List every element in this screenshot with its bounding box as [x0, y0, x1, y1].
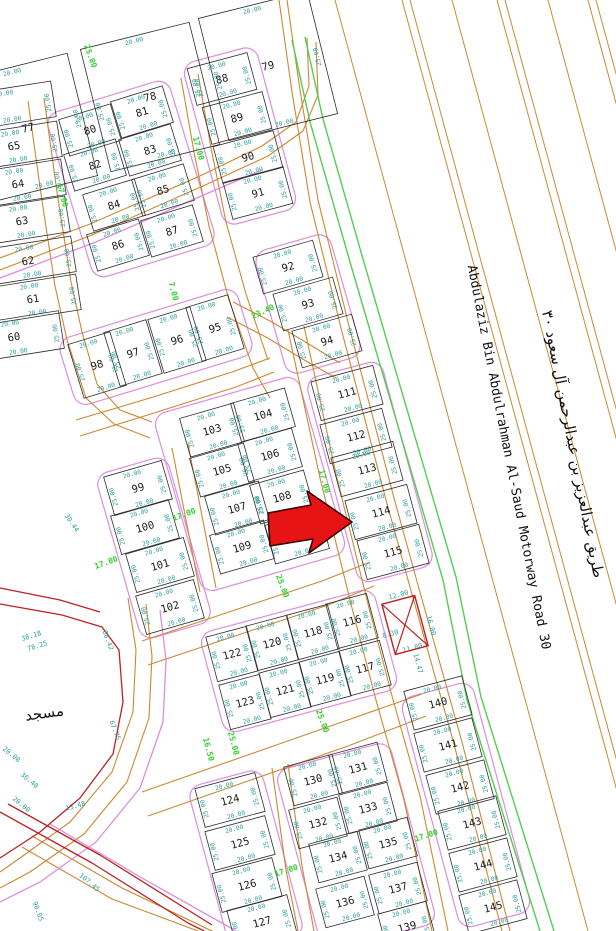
lot-dimension-label: 25.00 [288, 777, 300, 797]
lot-dimension-label: 20.00 [394, 898, 414, 910]
lot-dimension-label: 20.00 [206, 451, 226, 463]
road-width-label: 17.00 [93, 554, 119, 571]
lot-dimension-label: 20.00 [247, 396, 267, 408]
lot-dimension-label: 20.00 [349, 633, 369, 645]
lot-dimension-label: 20.00 [132, 370, 152, 382]
lot-dimension-label: 20.00 [226, 810, 246, 822]
parcel: 10425.0025.0020.0020.00 [231, 388, 296, 442]
boundary-dimension-label: 107.45 [77, 872, 101, 894]
boundary-dimension-label: 90.05 [31, 900, 46, 922]
lot-number: 86 [110, 238, 126, 253]
lot-dimension-label: 25.00 [68, 163, 80, 183]
lot-number: 134 [327, 849, 348, 866]
parcel: 9725.0025.0020.0020.00 [104, 320, 162, 386]
lot-number: 87 [164, 224, 180, 239]
lot-dimension-label: 20.00 [79, 147, 99, 159]
lot-dimension-label: 20.00 [115, 253, 135, 265]
lot-dimension-label: 25.00 [184, 428, 196, 448]
boundary-dimension-label: 88.42 [101, 629, 116, 651]
parcel: 12325.0025.0020.0020.00 [219, 674, 271, 729]
lot-dimension-label: 25.00 [307, 253, 319, 273]
lot-dimension-label: 20.00 [284, 275, 304, 287]
lot-number: 83 [142, 143, 158, 158]
lot-number: 105 [211, 462, 233, 479]
lot-number: 109 [231, 539, 253, 556]
lot-dimension-label: 20.00 [354, 778, 374, 790]
lot-dimension-label: 25.00 [453, 863, 465, 883]
lot-number: 79 [261, 59, 276, 74]
parcel: 14425.0025.0020.0020.00 [449, 838, 517, 892]
lot-dimension-label: 20.00 [362, 680, 382, 692]
lot-dimension-label: 25.00 [140, 606, 152, 626]
lot-number: 115 [382, 544, 403, 561]
lot-dimension-label: 20.00 [157, 574, 177, 586]
lot-dimension-label: 25.00 [178, 176, 190, 196]
lot-number: 118 [302, 624, 323, 641]
lot-dimension-label: 25.00 [343, 805, 355, 825]
lot-number: 94 [319, 334, 334, 349]
plat-map-viewport: 7725.0025.0020.0020.007825.0025.0020.002… [0, 0, 616, 931]
lot-dimension-label: 20.00 [126, 94, 146, 106]
lot-dimension-label: 25.00 [324, 435, 336, 455]
parcel: 12025.0025.0020.0020.00 [246, 615, 298, 670]
lot-dimension-label: 25.00 [211, 650, 223, 670]
lot-dimension-label: 25.00 [254, 495, 266, 515]
parcel: 6025.0025.0020.0020.00 [0, 311, 64, 364]
lot-dimension-label: 25.00 [63, 128, 75, 148]
lot-dimension-label: 25.00 [133, 231, 145, 251]
lot-dimension-label: 20.00 [272, 249, 292, 261]
setback-outline [187, 768, 305, 931]
lot-number: 60 [7, 331, 21, 345]
lot-dimension-label: 20.00 [102, 227, 122, 239]
parcel: 11925.0025.0020.0020.00 [299, 651, 351, 706]
lot-dimension-label: 20.00 [176, 357, 196, 369]
lot-dimension-label: 25.00 [313, 854, 325, 874]
parcel: 14325.0025.0020.0020.00 [438, 796, 506, 850]
parcel: 8425.0025.0020.0020.00 [83, 179, 146, 231]
lot-number: 142 [449, 779, 470, 796]
plat-map-canvas[interactable]: 7725.0025.0020.0020.007825.0025.0020.002… [0, 0, 616, 931]
lot-number: 122 [221, 646, 242, 663]
lot-number: 85 [155, 183, 171, 198]
lot-number: 98 [89, 358, 105, 373]
road-width-label: 25.00 [226, 731, 241, 757]
lot-number: 113 [356, 461, 377, 478]
lot-number: 136 [334, 894, 355, 911]
orange-road-line [32, 836, 212, 931]
road-width-label: 7.00 [167, 281, 181, 302]
parcel: 10625.0025.0020.0020.00 [238, 428, 303, 482]
lot-dimension-label: 20.00 [16, 230, 36, 240]
parcel: 8325.0025.0020.0020.00 [119, 124, 182, 176]
lot-number: 112 [345, 428, 366, 445]
lot-number: 139 [396, 919, 417, 931]
lot-dimension-label: 25.00 [430, 785, 442, 805]
lot-number: 65 [7, 140, 21, 154]
lot-number: 80 [82, 123, 98, 138]
lot-dimension-label: 25.00 [327, 290, 339, 310]
lot-number: 140 [427, 695, 448, 712]
parcel: 11525.0025.0020.0020.00 [357, 524, 429, 579]
boundary-dimension-label: 67.75 [108, 719, 123, 741]
lot-dimension-label: 25.00 [75, 362, 87, 382]
lot-dimension-label: 25.00 [320, 899, 332, 919]
lot-dimension-label: 20.00 [14, 244, 34, 254]
lot-dimension-label: 20.00 [122, 469, 142, 481]
road-width-label: 25.00 [274, 573, 291, 599]
lot-dimension-label: 20.00 [129, 508, 149, 520]
lot-number: 96 [169, 333, 185, 348]
road-width-label: 17.00 [413, 828, 439, 844]
parcel: 12625.0025.0020.0020.00 [212, 858, 282, 913]
lot-dimension-label: 20.00 [343, 403, 363, 415]
lot-dimension-label: 25.00 [69, 286, 79, 306]
lot-number: 88 [214, 72, 229, 87]
lot-dimension-label: 25.00 [292, 628, 304, 648]
lot-dimension-label: 25.00 [130, 564, 142, 584]
lot-number: 93 [300, 297, 315, 312]
lot-number: 144 [472, 857, 493, 874]
lot-dimension-label: 25.00 [209, 506, 221, 526]
boundary-dimension-label: 16.00 [424, 615, 437, 637]
lot-number: 130 [302, 772, 323, 789]
lot-number: 114 [370, 504, 391, 521]
lot-dimension-label: 25.00 [277, 303, 289, 323]
lot-dimension-label: 20.00 [226, 528, 246, 540]
lot-dimension-label: 25.00 [258, 534, 270, 554]
lot-dimension-label: 20.00 [309, 790, 329, 802]
lot-dimension-label: 20.00 [92, 173, 112, 185]
lot-dimension-label: 20.00 [239, 556, 259, 568]
lot-number: 101 [149, 557, 171, 574]
lot-dimension-label: 20.00 [96, 382, 116, 394]
lot-number: 81 [134, 105, 150, 120]
lot-number: 63 [15, 215, 29, 229]
parcel: 14125.0025.0020.0020.00 [414, 718, 482, 772]
parcel: 11825.0025.0020.0020.00 [287, 604, 339, 659]
lot-dimension-label: 25.00 [231, 921, 243, 931]
boundary-dimension-label: 13.48 [65, 800, 87, 813]
lot-dimension-label: 20.00 [311, 323, 331, 335]
lot-dimension-label: 20.00 [444, 755, 464, 767]
lot-dimension-label: 25.00 [188, 593, 200, 613]
lot-dimension-label: 25.00 [87, 203, 99, 223]
lot-dimension-label: 20.00 [9, 347, 29, 357]
lot-dimension-label: 25.00 [95, 101, 106, 121]
boundary-dimension-label: 30.44 [62, 512, 80, 533]
lot-number: 97 [125, 346, 141, 361]
lot-number: 117 [354, 660, 375, 677]
motorway-lane-line [452, 0, 616, 931]
lot-dimension-label: 20.00 [147, 158, 167, 170]
lot-dimension-label: 25.00 [157, 98, 169, 118]
parcel: 8925.0025.0020.0020.00 [202, 92, 272, 145]
red-road-line [0, 588, 100, 612]
lot-dimension-label: 25.00 [187, 217, 199, 237]
parcel: 8525.0025.0020.0020.00 [132, 164, 195, 216]
lot-number: 107 [226, 500, 248, 517]
lot-dimension-label: 25.00 [224, 698, 236, 718]
parcel: 10325.0025.0020.0020.00 [180, 403, 245, 457]
lot-dimension-label: 25.00 [206, 117, 218, 137]
lot-dimension-label: 20.00 [196, 411, 216, 423]
lot-dimension-label: 20.00 [2, 115, 22, 125]
parcel: 12425.0025.0020.0020.00 [195, 773, 265, 828]
lot-dimension-label: 20.00 [468, 833, 488, 845]
lot-number: 137 [387, 880, 408, 897]
lot-number: 116 [341, 613, 362, 630]
lot-dimension-label: 25.00 [286, 442, 298, 462]
lot-dimension-label: 20.00 [159, 313, 179, 325]
lot-dimension-label: 20.00 [169, 239, 189, 251]
lot-number: 64 [11, 178, 25, 192]
parcel: 8625.0025.0020.0020.00 [87, 219, 150, 271]
lot-dimension-label: 20.00 [147, 172, 167, 184]
lot-dimension-label: 25.00 [178, 551, 190, 571]
lot-dimension-label: 20.00 [267, 464, 287, 476]
lot-dimension-label: 25.00 [293, 820, 305, 840]
lot-number: 108 [271, 489, 293, 506]
lot-dimension-label: 25.00 [227, 192, 239, 212]
lot-dimension-label: 20.00 [160, 198, 180, 210]
lot-dimension-label: 25.00 [209, 842, 221, 862]
lot-dimension-label: 20.00 [292, 286, 312, 298]
lot-dimension-label: 25.00 [144, 341, 156, 361]
parcel: 14025.0025.0020.0020.00 [404, 676, 472, 730]
lot-number: 102 [159, 599, 181, 616]
lot-dimension-label: 25.00 [51, 323, 61, 343]
mosque-parcel-label: مسجد [24, 701, 65, 724]
lot-number: 132 [307, 815, 328, 832]
lot-dimension-label: 20.00 [341, 912, 361, 924]
parcel: 11625.0025.0020.0020.00 [326, 593, 378, 648]
lot-dimension-label: 20.00 [266, 478, 286, 490]
parcel: 10025.0025.0020.0020.00 [111, 500, 180, 555]
parcel: 9225.0025.0020.0020.00 [253, 240, 323, 294]
lot-dimension-label: 25.00 [279, 402, 291, 422]
lot-number: 77 [21, 121, 36, 136]
road-width-label: 17.00 [273, 863, 299, 879]
lot-dimension-label: 25.00 [115, 110, 127, 130]
lot-dimension-label: 25.00 [373, 885, 385, 905]
parcel: 9425.0025.0020.0020.00 [292, 314, 362, 368]
lot-dimension-label: 20.00 [0, 89, 14, 99]
lot-dimension-label: 25.00 [44, 93, 54, 113]
lot-dimension-label: 20.00 [434, 713, 454, 725]
lot-dimension-label: 20.00 [8, 155, 28, 165]
lot-dimension-label: 20.00 [0, 319, 20, 329]
lot-dimension-label: 20.00 [214, 345, 234, 357]
lot-dimension-label: 25.00 [382, 924, 394, 931]
lot-dimension-label: 25.00 [442, 821, 454, 841]
lot-dimension-label: 20.00 [197, 301, 217, 313]
lot-dimension-label: 20.00 [98, 187, 118, 199]
lot-dimension-label: 20.00 [167, 616, 187, 628]
lot-number: 135 [377, 835, 398, 852]
lot-number: 61 [26, 293, 40, 307]
parcel: 11725.0025.0020.0020.00 [339, 640, 391, 695]
lot-number: 143 [461, 815, 482, 832]
parcel: 9925.0025.0020.0020.00 [104, 461, 173, 516]
lot-dimension-label: 20.00 [115, 326, 135, 338]
lot-dimension-label: 25.00 [123, 148, 135, 168]
lot-number: 127 [251, 914, 272, 931]
parcel: 8125.0025.0020.0020.00 [111, 86, 174, 138]
lot-number: 133 [357, 800, 378, 817]
lot-number: 126 [236, 877, 257, 894]
parcel: 10925.0025.0020.0020.00 [210, 520, 275, 574]
lot-dimension-label: 20.00 [334, 867, 354, 879]
parcel: 13625.0025.0020.0020.00 [316, 876, 375, 928]
lot-dimension-label: 20.00 [4, 167, 24, 177]
lot-dimension-label: 20.00 [489, 917, 509, 929]
lot-number: 121 [274, 682, 295, 699]
lot-dimension-label: 25.00 [110, 151, 122, 171]
lot-dimension-label: 20.00 [282, 702, 302, 714]
lot-dimension-label: 25.00 [108, 487, 120, 507]
lot-number: 120 [261, 635, 282, 652]
lot-dimension-label: 25.00 [418, 743, 430, 763]
lot-dimension-label: 25.00 [156, 474, 168, 494]
lot-number: 124 [219, 792, 240, 809]
orange-road-line [0, 604, 152, 888]
lot-dimension-label: 25.00 [217, 156, 229, 176]
lot-dimension-label: 25.00 [214, 545, 226, 565]
lot-number: 106 [259, 447, 281, 464]
lot-number: 104 [252, 407, 274, 424]
lot-dimension-label: 25.00 [315, 392, 327, 412]
lot-number: 145 [482, 899, 503, 916]
lot-dimension-label: 20.00 [8, 204, 28, 214]
lot-dimension-label: 20.00 [0, 129, 20, 139]
motorway-lane-line [596, 0, 616, 931]
boundary-dimension-label: 20.00 [1, 745, 22, 764]
lot-number: 82 [87, 158, 103, 173]
lot-number: 95 [207, 321, 223, 336]
lot-dimension-label: 20.00 [242, 714, 262, 726]
lot-number: 100 [134, 519, 156, 536]
lot-dimension-label: 25.00 [199, 799, 211, 819]
lot-dimension-label: 20.00 [363, 479, 383, 491]
lot-number: 131 [347, 760, 368, 777]
lot-dimension-label: 20.00 [209, 439, 229, 451]
parcel: 12225.0025.0020.0020.00 [206, 626, 258, 681]
lot-dimension-label: 20.00 [384, 853, 404, 865]
lot-dimension-label: 20.00 [479, 875, 499, 887]
road-width-label: 16.50 [201, 737, 216, 763]
lot-dimension-label: 20.00 [229, 666, 249, 678]
parcel: 10125.0025.0020.0020.00 [126, 538, 195, 593]
lot-number: 62 [21, 255, 35, 269]
lot-dimension-label: 20.00 [322, 691, 342, 703]
lot-number: 103 [201, 422, 223, 439]
parcel: 9525.0025.0020.0020.00 [186, 295, 244, 361]
boundary-dimension-label: 14.47 [411, 653, 424, 675]
lot-number: 99 [130, 481, 145, 496]
lot-number: 92 [280, 260, 295, 275]
lot-dimension-label: 25.00 [335, 468, 347, 488]
lot-number: 89 [229, 111, 244, 126]
lot-dimension-label: 25.00 [361, 551, 373, 571]
lot-dimension-label: 25.00 [408, 701, 420, 721]
lot-number: 111 [336, 385, 357, 402]
lot-number: 125 [229, 835, 250, 852]
lot-number: 91 [250, 186, 265, 201]
lot-dimension-label: 20.00 [154, 588, 174, 600]
boundary-dimension-label: 36.40 [19, 771, 40, 790]
parcel: 10525.0025.0020.0020.00 [190, 443, 255, 497]
lot-dimension-label: 25.00 [91, 243, 103, 263]
lot-dimension-label: 20.00 [111, 213, 131, 225]
parcel: 14525.0025.0020.0020.00 [459, 880, 527, 931]
lot-dimension-label: 20.00 [254, 202, 274, 214]
lot-dimension-label: 25.00 [257, 266, 269, 286]
lot-dimension-label: 20.00 [269, 655, 289, 667]
lot-dimension-label: 20.00 [19, 282, 39, 292]
parcel: 9625.0025.0020.0020.00 [148, 307, 206, 373]
parcel: 9825.0025.0020.0020.00 [68, 332, 126, 398]
parcel: 9325.0025.0020.0020.00 [273, 277, 343, 331]
lot-dimension-label: 25.00 [363, 840, 375, 860]
boundary-dimension-label: 78.25 [26, 639, 48, 653]
road-width-label: 25.00 [314, 708, 331, 734]
parcel: 11125.0025.0020.0020.00 [311, 365, 383, 420]
motorway-lane-line [588, 0, 616, 931]
motorway-lane-line [505, 0, 616, 931]
lot-number: 123 [234, 694, 255, 711]
lot-dimension-label: 25.00 [58, 208, 68, 228]
parcel: 14225.0025.0020.0020.00 [426, 760, 494, 814]
lot-dimension-label: 20.00 [79, 338, 99, 350]
lot-dimension-label: 20.00 [22, 270, 42, 280]
lot-dimension-label: 25.00 [115, 526, 127, 546]
lot-dimension-label: 25.00 [463, 905, 475, 925]
lot-number: 119 [314, 671, 335, 688]
parcel: 12525.0025.0020.0020.00 [205, 816, 275, 871]
